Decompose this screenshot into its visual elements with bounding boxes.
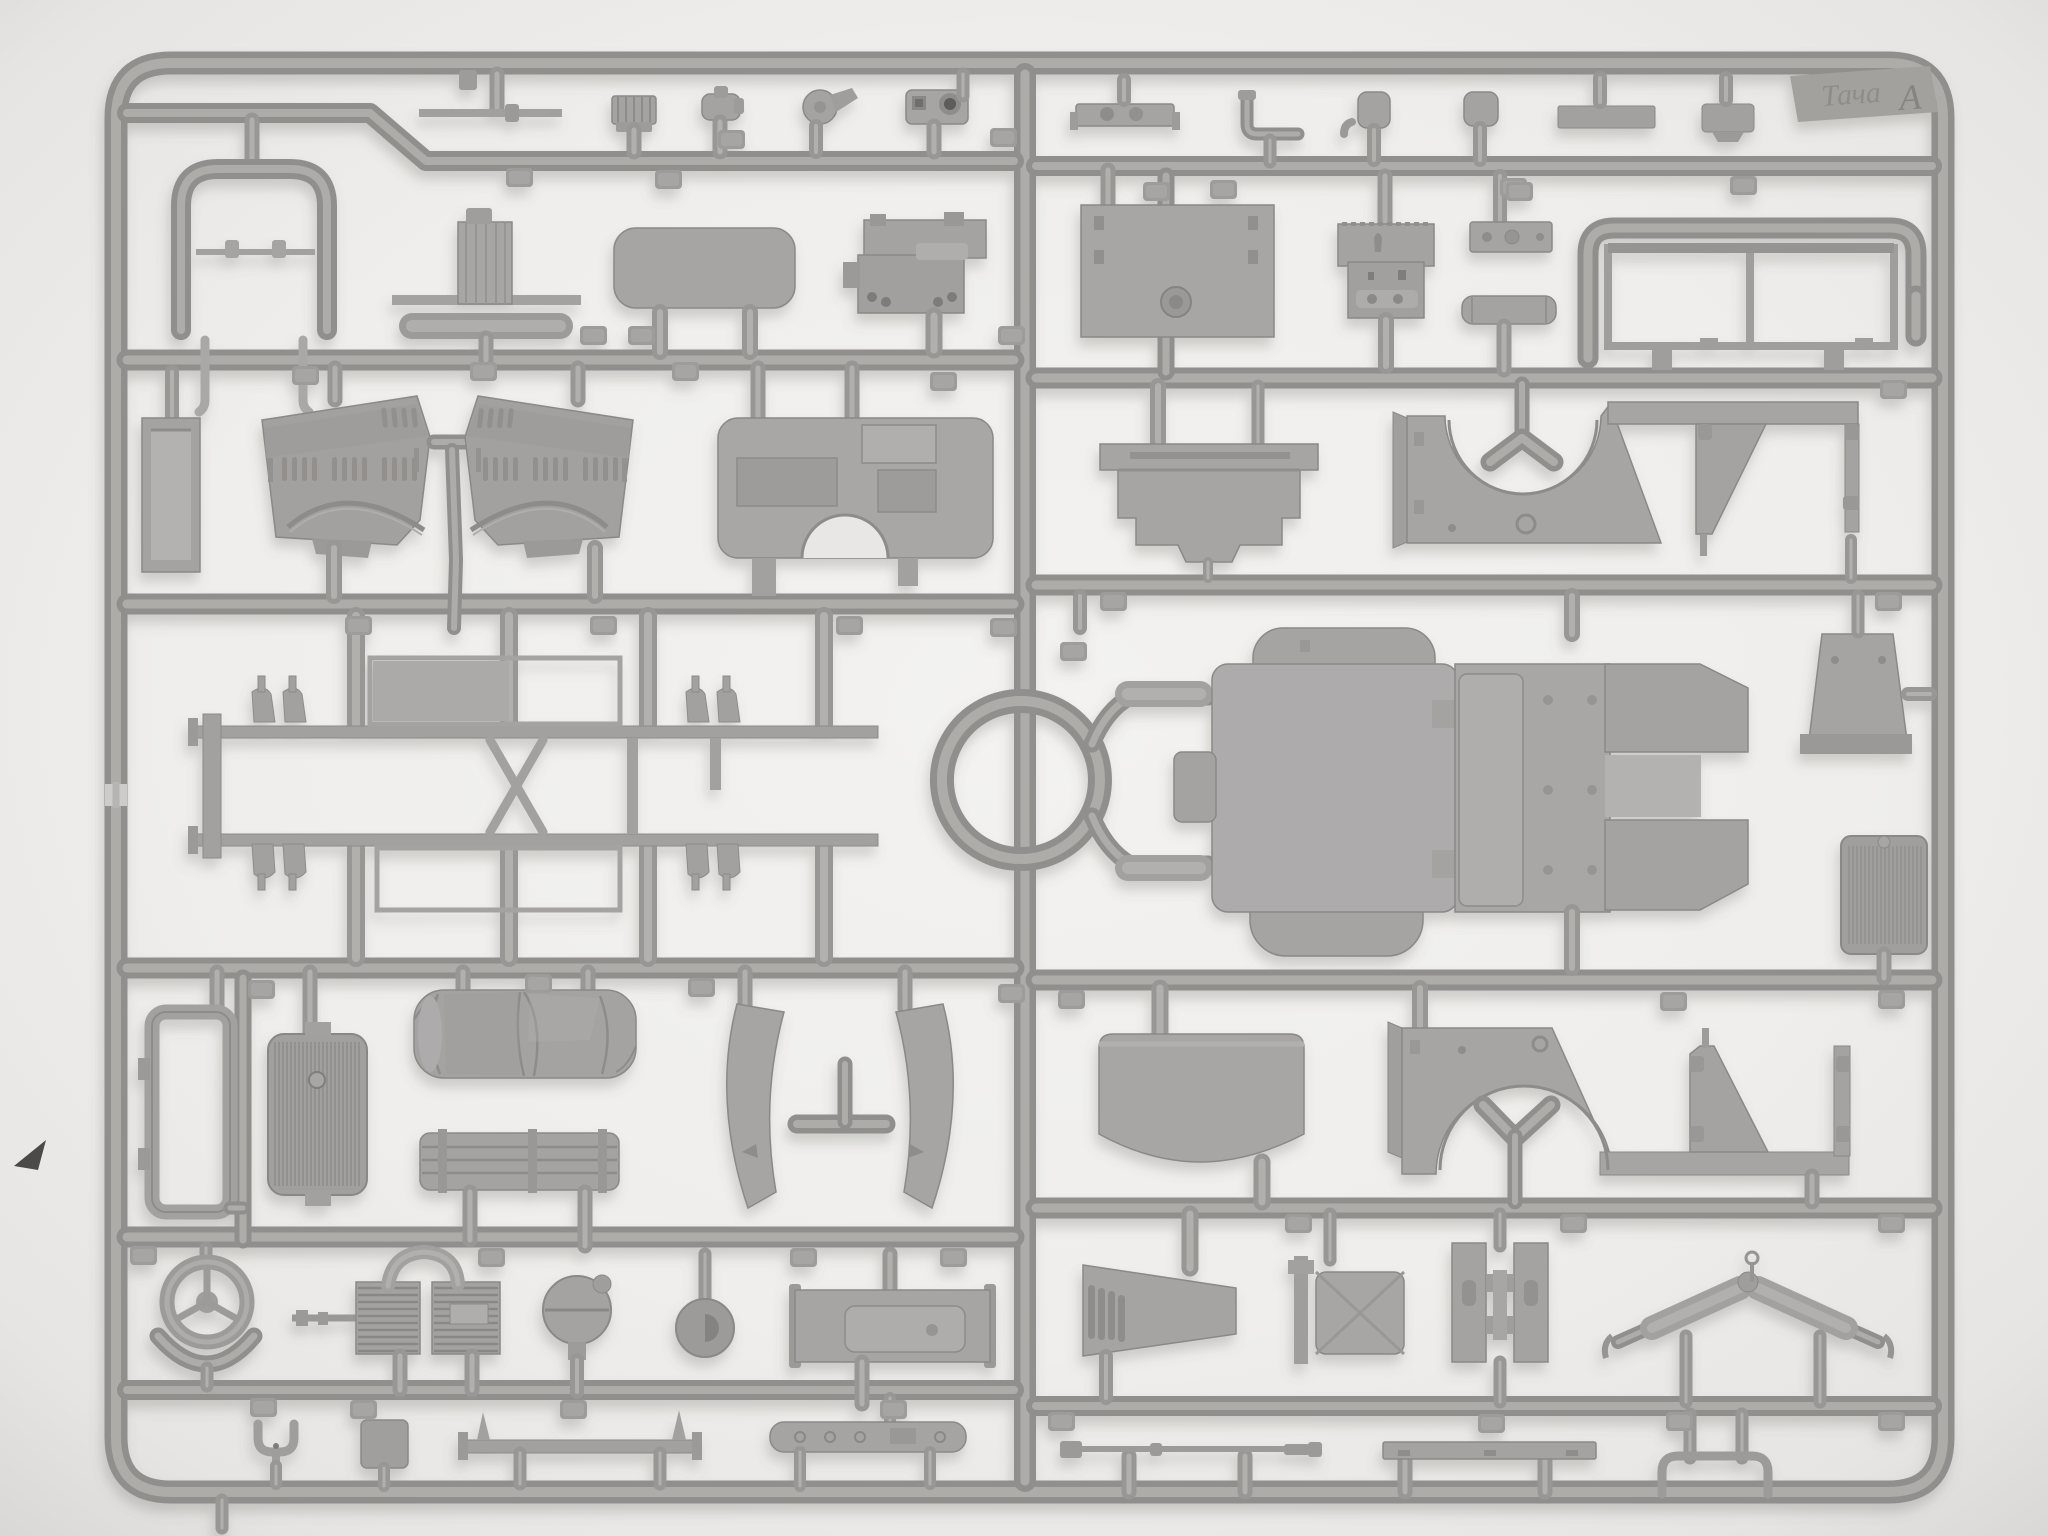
svg-text:Тача: Тача: [1820, 76, 1882, 113]
svg-text:A: A: [1896, 76, 1924, 118]
